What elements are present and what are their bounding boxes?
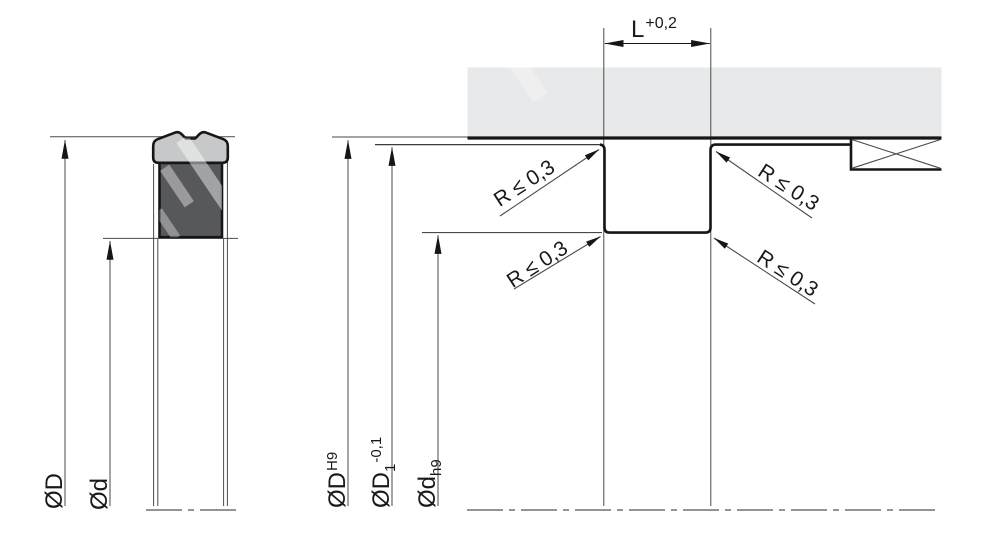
bore-diameter-label: ØDH9: [324, 452, 351, 508]
cylinder-wall: [468, 68, 942, 138]
seal-od-label: ØD: [41, 473, 68, 509]
clearance-diameter-label: ØD1-0,1: [368, 437, 399, 508]
radius-label-upper-right: R ≤ 0,3: [754, 160, 823, 216]
seal-installation-drawing: L+0,2 R ≤ 0,3 R ≤ 0,3 R ≤ 0,3 R ≤ 0,3 ØD…: [0, 0, 1000, 544]
groove-width-label: L+0,2: [631, 15, 677, 43]
groove-root-diameter-label: Ødh9: [414, 459, 445, 508]
technical-drawing-canvas: L+0,2 R ≤ 0,3 R ≤ 0,3 R ≤ 0,3 R ≤ 0,3 ØD…: [0, 0, 1000, 544]
radius-label-lower-right: R ≤ 0,3: [753, 246, 822, 302]
radius-label-lower-left: R ≤ 0,3: [503, 237, 572, 293]
seal-id-label: Ød: [86, 478, 113, 510]
